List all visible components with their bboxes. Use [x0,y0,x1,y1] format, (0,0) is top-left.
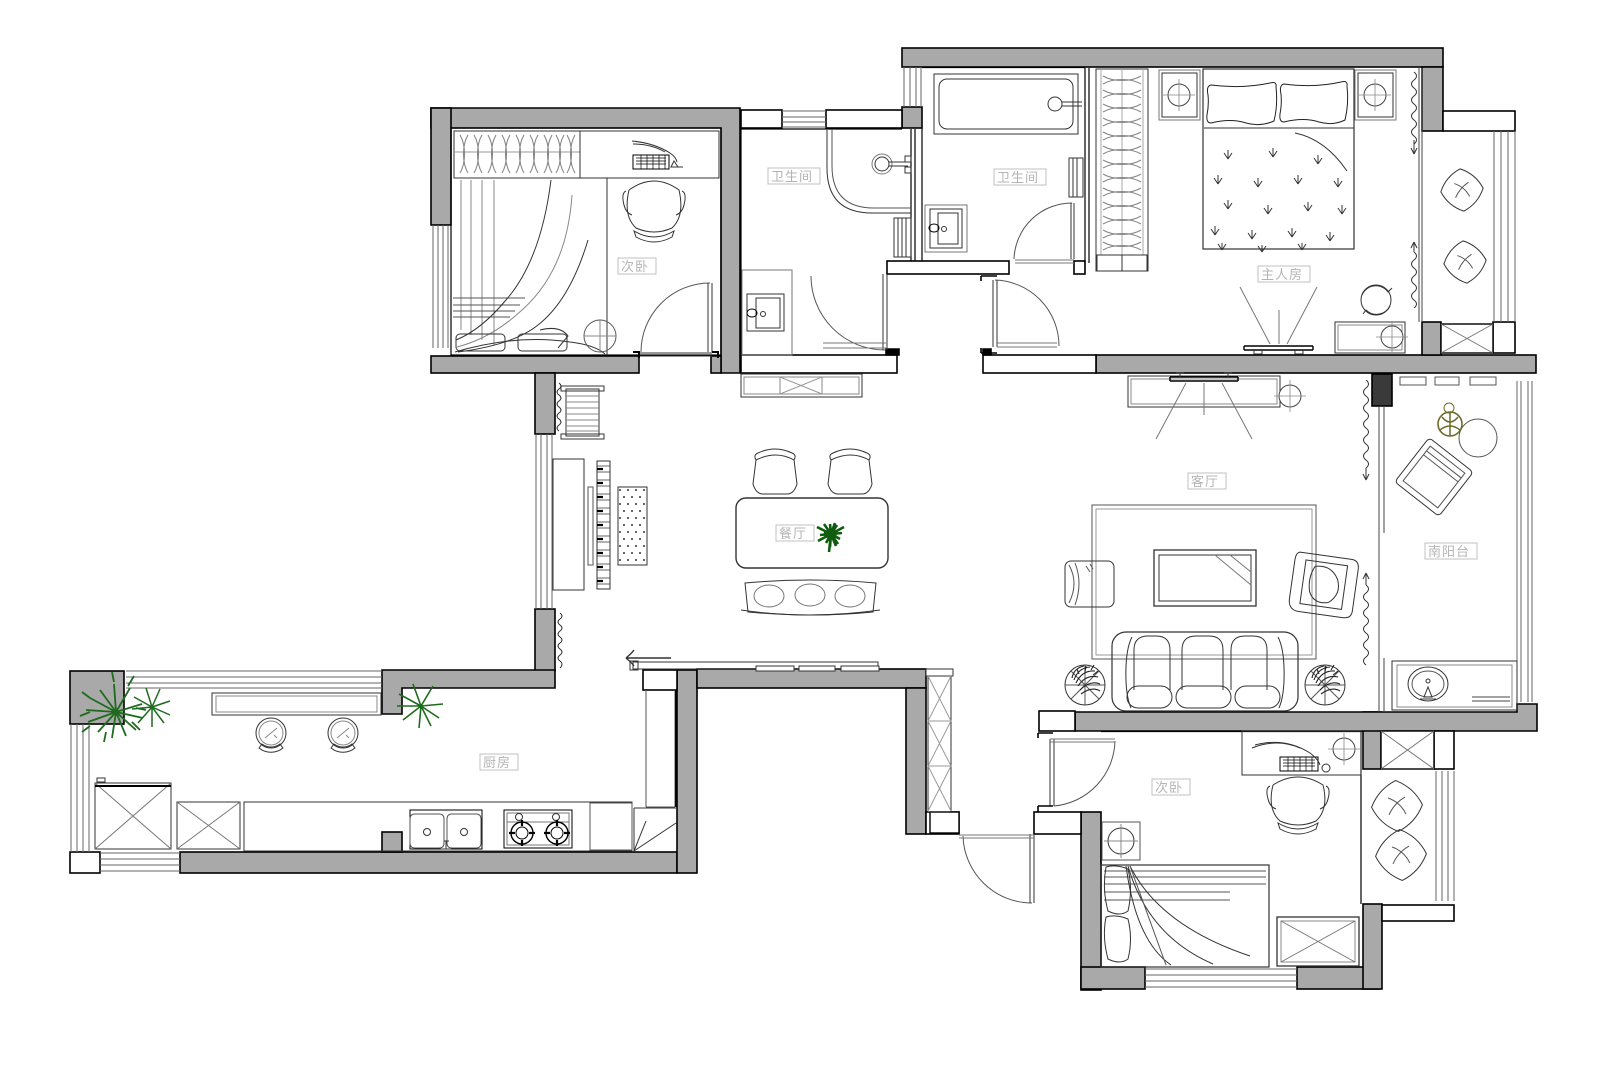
svg-text:餐厅: 餐厅 [779,526,807,541]
svg-text:主人房: 主人房 [1261,267,1303,282]
svg-text:次卧: 次卧 [1155,780,1183,795]
svg-text:客厅: 客厅 [1191,474,1219,489]
svg-text:卫生间: 卫生间 [771,169,813,184]
svg-text:卫生间: 卫生间 [997,170,1039,185]
svg-text:南阳台: 南阳台 [1428,544,1470,559]
svg-text:次卧: 次卧 [621,259,649,274]
svg-text:厨房: 厨房 [483,755,511,770]
